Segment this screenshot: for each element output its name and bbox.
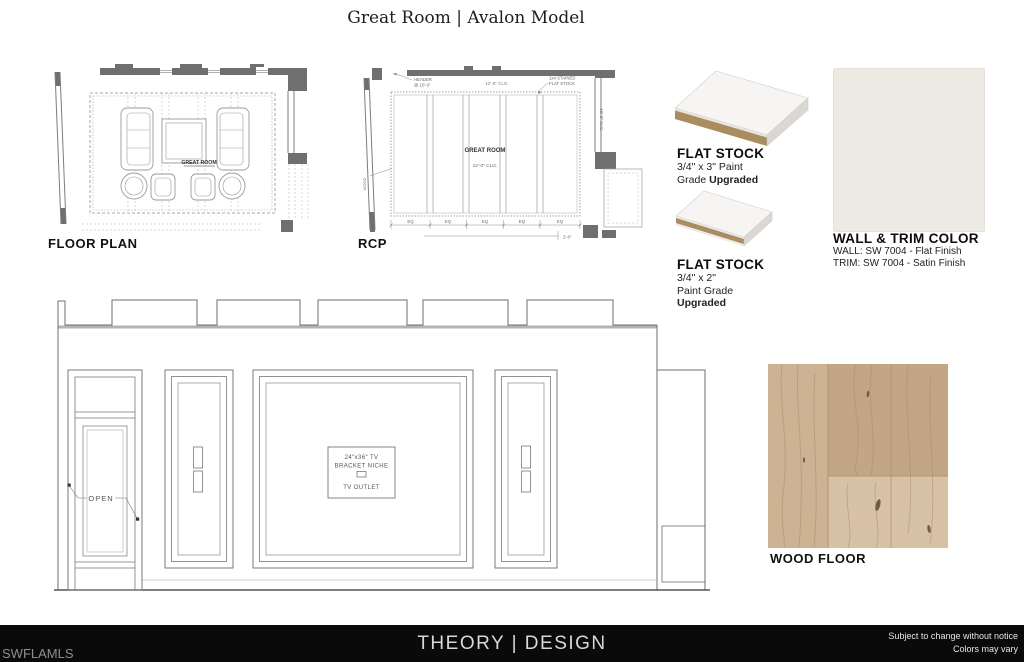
ceiling-beam-profile xyxy=(58,300,657,325)
wood-floor-label: WOOD FLOOR xyxy=(770,551,866,566)
flat-stock-1-text: FLAT STOCK 3/4" x 3" Paint Grade Upgrade… xyxy=(677,146,807,186)
flat-stock-1-image xyxy=(670,60,820,152)
rcp-ceiling-height: 12'-0" CLG. xyxy=(473,163,498,169)
rcp-label: RCP xyxy=(358,236,387,251)
open-label: OPEN xyxy=(88,494,113,503)
tv-niche-line1: 24"x36" TV xyxy=(345,455,379,461)
rcp-ceiling xyxy=(391,92,580,216)
svg-text:EQ: EQ xyxy=(407,219,414,224)
svg-text:EQ: EQ xyxy=(557,219,564,224)
wall-panel-right xyxy=(495,370,557,568)
rcp-eq-labels: EQ EQ EQ EQ EQ xyxy=(407,219,563,224)
wall-trim-title: WALL & TRIM COLOR xyxy=(833,231,979,246)
open-doorway xyxy=(68,370,142,590)
floor-plan-room-label: GREAT ROOM xyxy=(181,160,216,166)
wood-floor-image xyxy=(768,364,948,548)
rcp-left-note: WOOD xyxy=(362,169,392,191)
svg-text:EQ: EQ xyxy=(482,219,489,224)
tv-outlet-label: TV OUTLET xyxy=(343,485,380,491)
ceiling-beams xyxy=(427,95,543,213)
svg-text:WOOD: WOOD xyxy=(362,177,367,190)
trim-color-spec: TRIM: SW 7004 - Satin Finish xyxy=(833,258,979,270)
rcp-drawing: GREAT ROOM 12'-0" CLG. 12'-0" CLG. HEADE… xyxy=(352,62,645,255)
brand-logo: THEORY | DESIGN xyxy=(0,633,1024,655)
svg-text:HEADER: HEADER xyxy=(414,77,432,82)
mls-watermark: SWFLAMLS xyxy=(2,646,74,661)
flat-stock-2-spec1: 3/4" x 2" xyxy=(677,272,797,285)
svg-text:FLAT STOCK: FLAT STOCK xyxy=(549,81,575,86)
right-return-wall xyxy=(657,370,705,590)
disclaimer-line1: Subject to change without notice xyxy=(888,630,1018,643)
wall-color-spec: WALL: SW 7004 - Flat Finish xyxy=(833,246,979,258)
elevation-drawing: OPEN 24"x36" TV BRACKET NICHE TV OUTLET xyxy=(42,290,722,602)
tv-niche-callout: 24"x36" TV BRACKET NICHE TV OUTLET xyxy=(328,447,395,498)
floor-plan-label: FLOOR PLAN xyxy=(48,236,138,251)
flat-stock-1-title: FLAT STOCK xyxy=(677,146,807,161)
wall-panel-left xyxy=(165,370,233,568)
rcp-clg-top-note: 12'-0" CLG. xyxy=(485,81,508,86)
tv-niche-line2: BRACKET NICHE xyxy=(335,464,389,470)
svg-text:1x4 STAINED: 1x4 STAINED xyxy=(549,76,575,81)
svg-text:EQ: EQ xyxy=(519,219,526,224)
page-title: Great Room | Avalon Model xyxy=(0,8,932,28)
footer-bar: THEORY | DESIGN SWFLAMLS Subject to chan… xyxy=(0,625,1024,662)
floor-plan-drawing: GREAT ROOM xyxy=(45,62,330,255)
open-annotation: OPEN xyxy=(68,484,140,521)
rcp-room-label: GREAT ROOM xyxy=(465,148,506,154)
rcp-dim-right: 2'-0" xyxy=(563,235,572,240)
svg-text:@ 10'-0": @ 10'-0" xyxy=(414,83,431,88)
wall-trim-text: WALL & TRIM COLOR WALL: SW 7004 - Flat F… xyxy=(833,231,979,269)
rcp-stock-note: 1x4 STAINED FLAT STOCK xyxy=(538,76,575,95)
floor-plan-furniture xyxy=(121,108,249,200)
flat-stock-2-image xyxy=(672,186,792,248)
sconce-left xyxy=(194,447,203,468)
flat-stock-1-spec1: 3/4" x 3" Paint xyxy=(677,161,807,174)
disclaimer: Subject to change without notice Colors … xyxy=(888,630,1018,656)
right-base-cabinet xyxy=(662,526,705,582)
flat-stock-2-title: FLAT STOCK xyxy=(677,257,797,272)
rcp-clg-right-note: 10'-0" CLG. xyxy=(599,108,604,131)
sconce-right xyxy=(522,446,531,468)
wood-plank-lower xyxy=(828,476,948,548)
flat-stock-1-spec2: Grade Upgraded xyxy=(677,174,807,187)
wall-trim-swatch xyxy=(833,68,985,232)
svg-text:EQ: EQ xyxy=(445,219,452,224)
disclaimer-line2: Colors may vary xyxy=(888,643,1018,656)
